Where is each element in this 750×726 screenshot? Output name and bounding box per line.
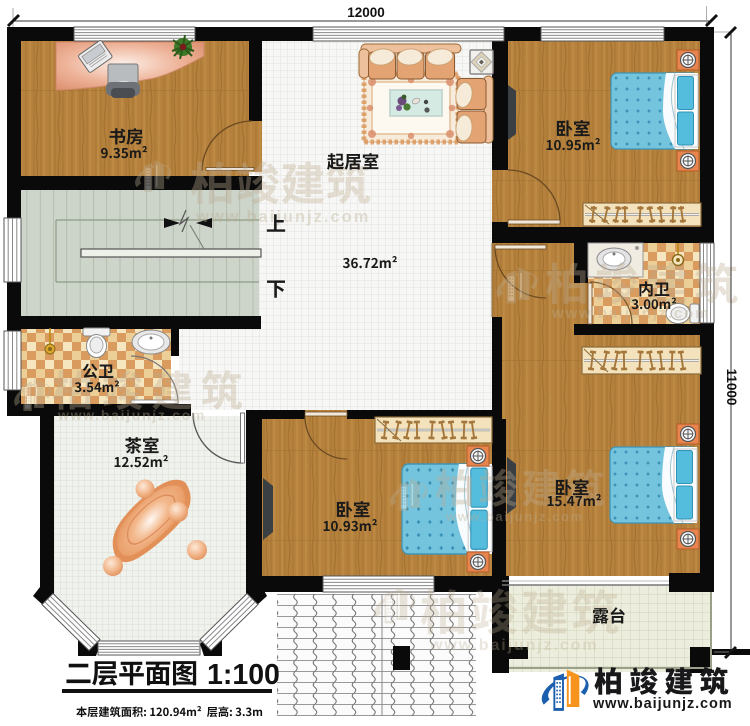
svg-text:12000: 12000 [347, 5, 385, 20]
svg-text:11000: 11000 [724, 369, 739, 406]
svg-text:www.baijunjz.com: www.baijunjz.com [195, 208, 370, 226]
svg-text:www.baijunjz.com: www.baijunjz.com [429, 637, 599, 654]
svg-text:www.baijunjz.com: www.baijunjz.com [57, 407, 206, 423]
svg-text:www.baijunjz.com: www.baijunjz.com [445, 509, 584, 524]
svg-text:www.baijunjz.com: www.baijunjz.com [551, 305, 710, 322]
svg-text:1:100: 1:100 [207, 659, 280, 691]
svg-text:www.baijunjz.com: www.baijunjz.com [592, 696, 733, 712]
